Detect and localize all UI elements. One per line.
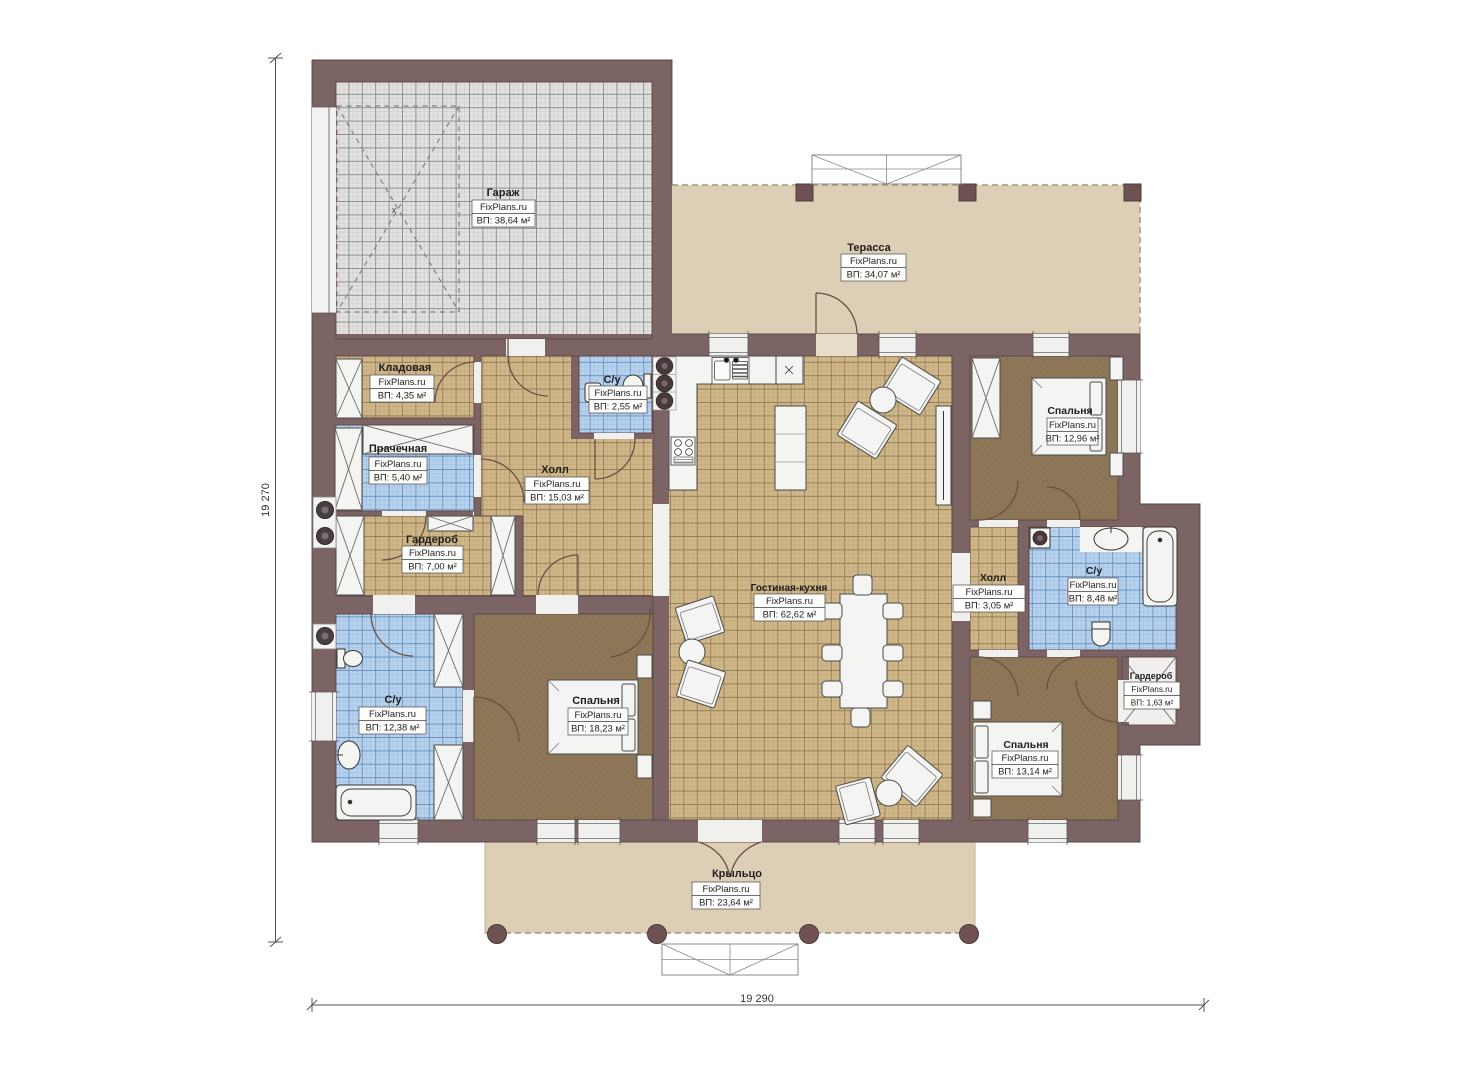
svg-text:ВП: 12,96 м²: ВП: 12,96 м² — [1046, 433, 1100, 444]
svg-text:Холл: Холл — [980, 572, 1006, 584]
svg-text:FixPlans.ru: FixPlans.ru — [575, 709, 622, 720]
svg-text:Терасса: Терасса — [847, 242, 891, 254]
svg-text:FixPlans.ru: FixPlans.ru — [480, 201, 527, 212]
svg-text:Холл: Холл — [541, 464, 569, 476]
svg-text:Гардероб: Гардероб — [406, 534, 458, 546]
svg-text:ВП: 3,05 м²: ВП: 3,05 м² — [965, 600, 1014, 611]
svg-text:FixPlans.ru: FixPlans.ru — [595, 387, 642, 398]
svg-text:Спальня: Спальня — [1003, 739, 1048, 751]
svg-text:19 270: 19 270 — [260, 483, 272, 517]
svg-text:Спальня: Спальня — [572, 695, 620, 707]
svg-text:Гардероб: Гардероб — [1130, 671, 1173, 681]
svg-text:ВП: 18,23 м²: ВП: 18,23 м² — [571, 723, 625, 734]
svg-text:С/у: С/у — [603, 374, 621, 386]
svg-text:FixPlans.ru: FixPlans.ru — [966, 586, 1013, 597]
svg-text:С/у: С/у — [1086, 565, 1103, 577]
svg-text:ВП: 23,64 м²: ВП: 23,64 м² — [699, 897, 753, 908]
svg-text:FixPlans.ru: FixPlans.ru — [534, 478, 581, 489]
svg-text:FixPlans.ru: FixPlans.ru — [409, 547, 456, 558]
svg-text:Крыльцо: Крыльцо — [712, 868, 762, 880]
svg-text:ВП: 5,40 м²: ВП: 5,40 м² — [374, 472, 423, 483]
svg-text:ВП: 7,00 м²: ВП: 7,00 м² — [408, 561, 457, 572]
svg-text:ВП: 1,63 м²: ВП: 1,63 м² — [1131, 699, 1174, 708]
svg-text:ВП: 15,03 м²: ВП: 15,03 м² — [530, 492, 584, 503]
svg-text:Гостиная-кухня: Гостиная-кухня — [751, 583, 828, 594]
svg-text:FixPlans.ru: FixPlans.ru — [375, 458, 422, 469]
svg-text:Кладовая: Кладовая — [379, 362, 432, 374]
svg-text:FixPlans.ru: FixPlans.ru — [1049, 419, 1096, 430]
svg-text:Гараж: Гараж — [487, 187, 520, 199]
svg-text:ВП: 8,48 м²: ВП: 8,48 м² — [1069, 593, 1118, 604]
svg-text:ВП: 62,62 м²: ВП: 62,62 м² — [763, 609, 817, 620]
svg-text:FixPlans.ru: FixPlans.ru — [1070, 579, 1117, 590]
svg-text:ВП: 12,38 м²: ВП: 12,38 м² — [366, 722, 420, 733]
svg-text:Спальня: Спальня — [1047, 405, 1092, 417]
svg-text:19 290: 19 290 — [740, 993, 774, 1005]
svg-text:С/у: С/у — [384, 694, 402, 706]
svg-text:FixPlans.ru: FixPlans.ru — [850, 255, 897, 266]
svg-text:FixPlans.ru: FixPlans.ru — [369, 708, 416, 719]
svg-text:ВП: 34,07 м²: ВП: 34,07 м² — [847, 269, 901, 280]
svg-text:x: x — [392, 205, 397, 215]
svg-text:Прачечная: Прачечная — [369, 443, 427, 455]
svg-text:FixPlans.ru: FixPlans.ru — [379, 376, 426, 387]
svg-text:ВП: 13,14 м²: ВП: 13,14 м² — [998, 766, 1052, 777]
svg-text:ВП: 38,64 м²: ВП: 38,64 м² — [477, 215, 531, 226]
svg-text:ВП: 2,55 м²: ВП: 2,55 м² — [594, 401, 643, 412]
svg-text:FixPlans.ru: FixPlans.ru — [766, 595, 813, 606]
svg-text:FixPlans.ru: FixPlans.ru — [1132, 685, 1173, 694]
svg-text:ВП: 4,35 м²: ВП: 4,35 м² — [378, 390, 427, 401]
svg-text:FixPlans.ru: FixPlans.ru — [1002, 752, 1049, 763]
svg-text:FixPlans.ru: FixPlans.ru — [703, 883, 750, 894]
